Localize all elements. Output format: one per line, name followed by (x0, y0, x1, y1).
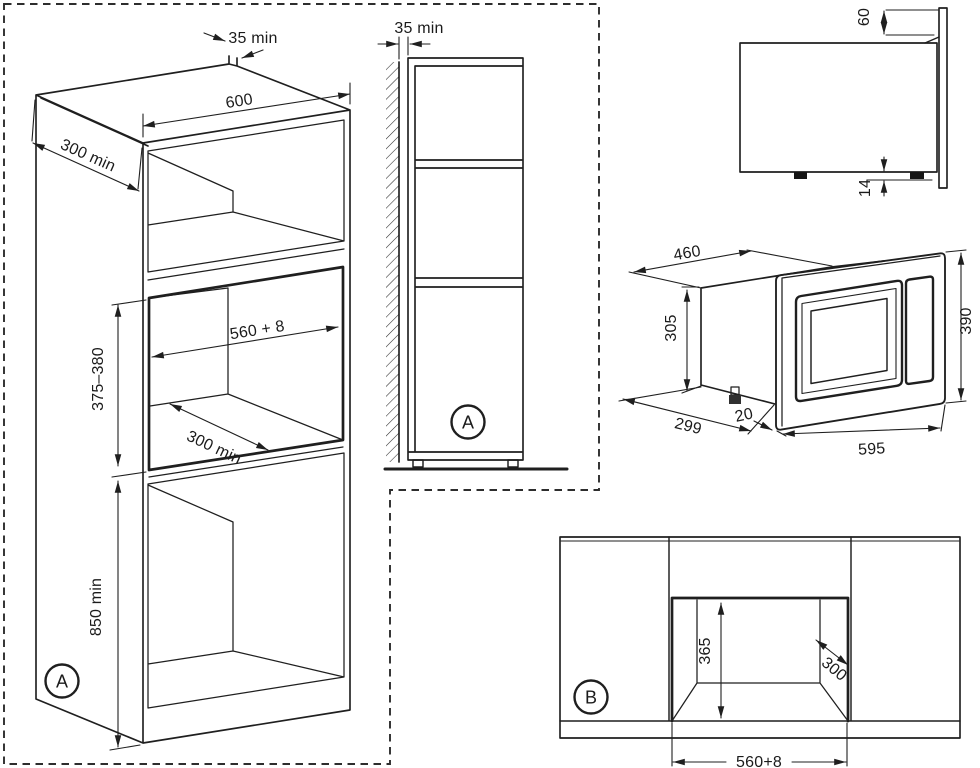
microwave-side-view: 60 14 (740, 8, 947, 197)
dim-niche-front-depth-label: 300 (818, 654, 850, 685)
dim-frame-lip: 20 (733, 405, 772, 430)
mounting-flange (925, 37, 939, 43)
cabinet-isometric-view: 35 min 600 300 min 560 + 8 300 min 375– (32, 30, 350, 750)
dim-wall-gap-iso-label: 35 min (228, 30, 277, 47)
oven-door-window (811, 299, 887, 384)
dim-frame-width-label: 595 (858, 440, 886, 458)
dim-cabinet-depth-label: 300 min (58, 136, 118, 175)
cabinet-openings (148, 120, 344, 708)
dim-niche-width-iso-label: 560 + 8 (229, 318, 286, 343)
dim-wall-gap-side-label: 35 min (394, 20, 443, 37)
cabinet-foot-right (508, 460, 518, 467)
microwave-isometric-view: 460 305 299 20 595 390 (619, 243, 975, 459)
oven-foot-right (910, 172, 924, 179)
dim-niche-depth-iso: 300 min (170, 404, 268, 468)
cabinet-side-view: 35 min A (378, 20, 567, 469)
niche-cabinet-panel-lines (560, 537, 960, 721)
cable-gland-body (729, 395, 741, 404)
niche-cabinet-outline (560, 537, 960, 738)
control-panel (906, 277, 933, 384)
dim-body-width: 460 (629, 243, 832, 288)
dim-frame-height-label: 390 (958, 307, 975, 334)
view-a-badge-iso: A (46, 665, 79, 698)
view-b-badge: B (575, 681, 608, 714)
dim-wall-gap-side: 35 min (378, 20, 444, 59)
installation-manual-page: 35 min 600 300 min 560 + 8 300 min 375– (0, 0, 980, 768)
dim-niche-front-height-label: 365 (697, 637, 714, 664)
view-a-badge-side: A (452, 406, 485, 439)
dim-body-height-label: 305 (663, 314, 680, 341)
dim-niche-height-iso-label: 375–380 (90, 347, 107, 411)
dim-body-depth-label: 299 (673, 415, 704, 438)
view-a-badge-iso-label: A (56, 672, 68, 692)
dim-foot-height-label: 14 (857, 179, 874, 197)
dim-plinth-height: 850 min (88, 481, 140, 750)
installation-diagram: 35 min 600 300 min 560 + 8 300 min 375– (0, 0, 980, 768)
niche-front-view: 365 300 560+8 B (560, 537, 960, 768)
dim-niche-front-depth: 300 (816, 640, 850, 685)
oven-front-frame-side (939, 8, 947, 188)
dim-frame-lip-label: 20 (733, 405, 754, 425)
dim-niche-front-width: 560+8 (672, 723, 847, 768)
dim-frame-width: 595 (777, 405, 945, 459)
oven-foot-left (794, 172, 807, 179)
dim-cabinet-depth: 300 min (32, 100, 142, 191)
dim-niche-front-height: 365 (697, 603, 721, 718)
oven-body-side (740, 43, 937, 172)
oven-front-frame (776, 253, 945, 429)
dim-plinth-height-label: 850 min (88, 578, 105, 636)
dim-cabinet-width: 600 (143, 83, 350, 137)
dim-frame-height: 390 (946, 250, 975, 403)
dim-frame-overhang: 60 (856, 8, 938, 35)
dim-frame-overhang-label: 60 (856, 8, 873, 26)
side-cabinet-outline (408, 58, 523, 460)
dim-cabinet-width-label: 600 (224, 91, 254, 112)
view-a-badge-side-label: A (462, 413, 474, 433)
dim-wall-gap-iso: 35 min (204, 30, 278, 58)
view-b-badge-label: B (585, 688, 597, 708)
niche-interior-lines (149, 288, 343, 440)
dim-niche-height-iso: 375–380 (90, 300, 146, 477)
wall-hatching (386, 62, 399, 462)
dim-niche-front-width-label: 560+8 (736, 754, 782, 768)
cabinet-foot-left (413, 460, 423, 467)
oven-body-edges (701, 261, 884, 404)
dim-body-height: 305 (663, 287, 701, 393)
dim-niche-width-iso: 560 + 8 (152, 318, 338, 357)
